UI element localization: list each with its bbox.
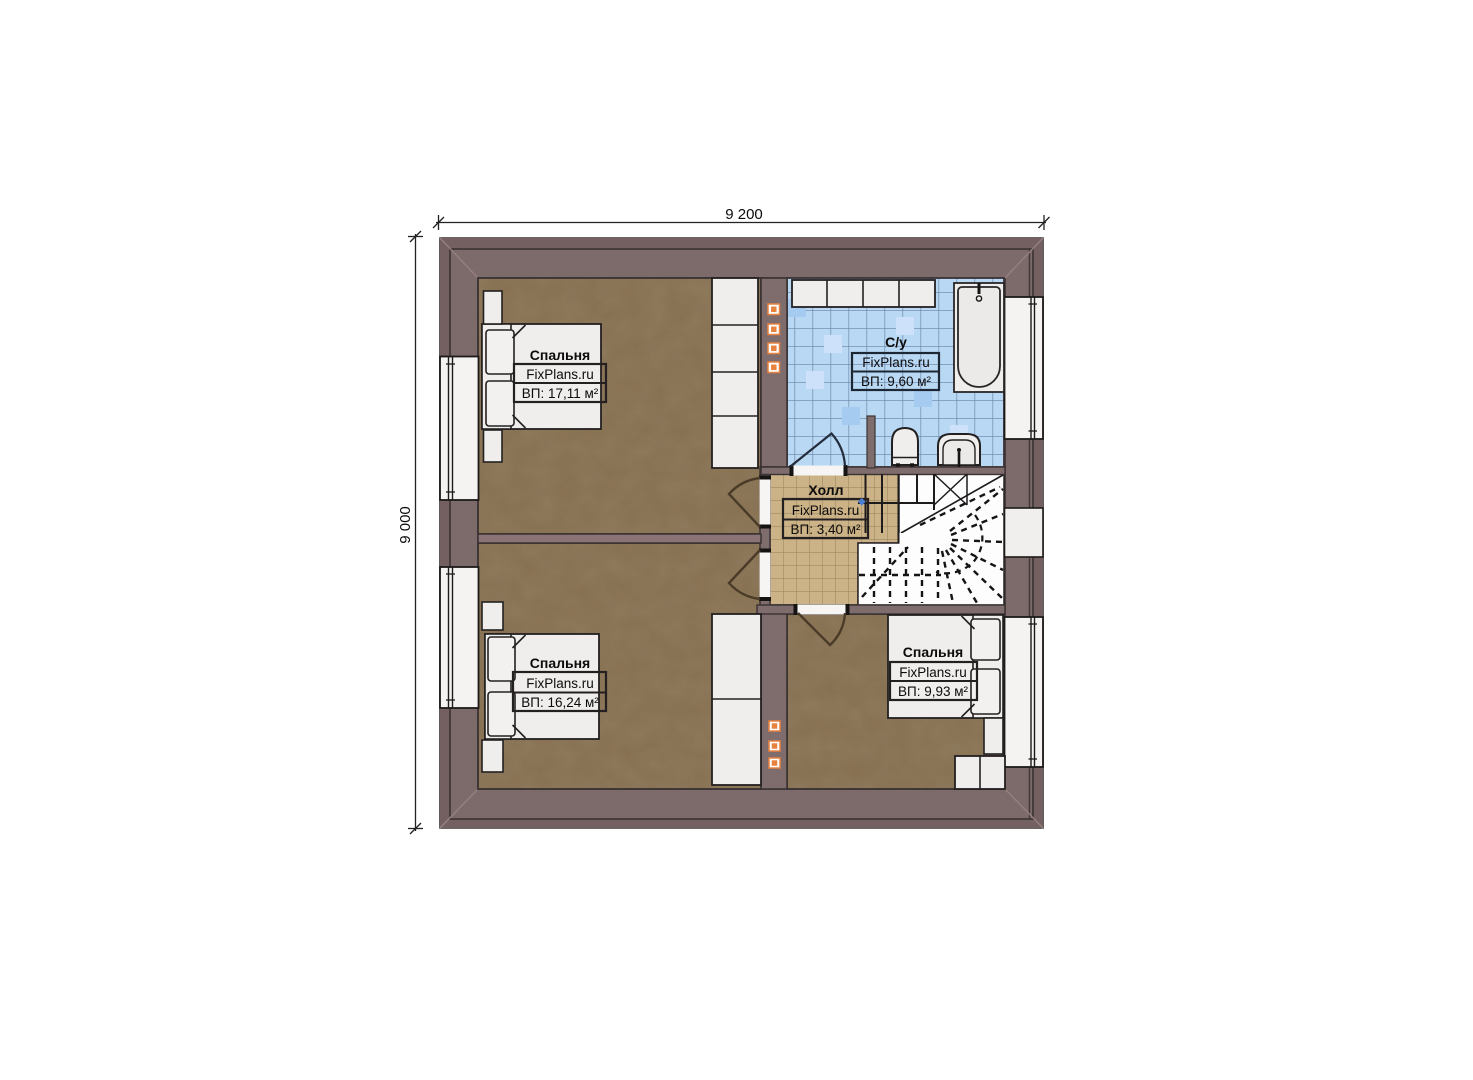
svg-text:Холл: Холл [808, 482, 843, 498]
svg-text:FixPlans.ru: FixPlans.ru [899, 665, 967, 680]
svg-text:С/у: С/у [885, 334, 907, 350]
svg-text:FixPlans.ru: FixPlans.ru [526, 367, 594, 382]
svg-text:ВП: 9,93 м²: ВП: 9,93 м² [898, 684, 969, 699]
svg-text:FixPlans.ru: FixPlans.ru [792, 503, 860, 518]
svg-text:Спальня: Спальня [530, 655, 590, 671]
svg-text:ВП: 17,11 м²: ВП: 17,11 м² [522, 386, 599, 401]
svg-text:FixPlans.ru: FixPlans.ru [862, 355, 930, 370]
svg-text:ВП: 16,24 м²: ВП: 16,24 м² [521, 695, 599, 710]
svg-text:Спальня: Спальня [530, 347, 590, 363]
svg-text:ВП: 3,40 м²: ВП: 3,40 м² [790, 522, 861, 537]
svg-text:9 200: 9 200 [725, 206, 763, 223]
svg-text:Спальня: Спальня [903, 644, 963, 660]
svg-text:FixPlans.ru: FixPlans.ru [526, 676, 594, 691]
svg-text:9 000: 9 000 [397, 506, 414, 544]
svg-text:ВП: 9,60 м²: ВП: 9,60 м² [861, 374, 932, 389]
